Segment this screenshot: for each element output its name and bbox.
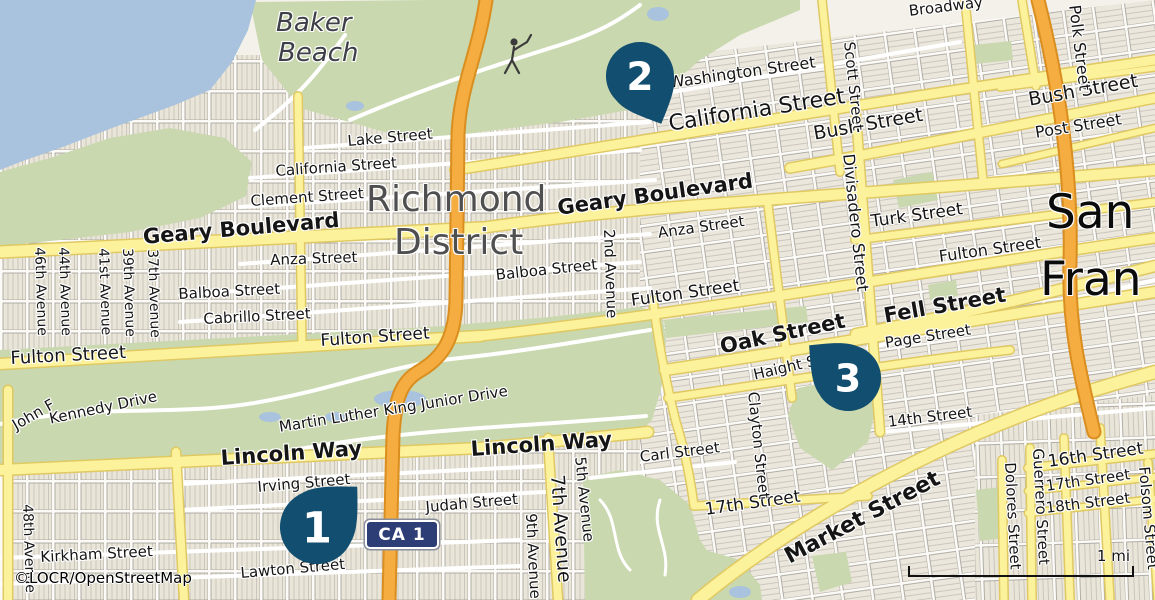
map-attribution: ©LOCR/OpenStreetMap: [14, 569, 192, 587]
map-canvas[interactable]: BakerBeachRichmondDistrictSanFranBroadwa…: [0, 0, 1155, 600]
svg-text:2: 2: [626, 55, 653, 100]
marker-pin-2[interactable]: 2: [570, 6, 710, 146]
svg-text:1: 1: [302, 503, 332, 553]
scale-bar-label: 1 mi: [1097, 547, 1130, 565]
markers-layer: 123: [0, 0, 1155, 600]
route-shield-ca1: CA 1: [365, 520, 439, 549]
marker-pin-3[interactable]: 3: [778, 308, 918, 448]
scale-bar: 1 mi: [908, 566, 1134, 577]
svg-text:3: 3: [835, 357, 861, 401]
